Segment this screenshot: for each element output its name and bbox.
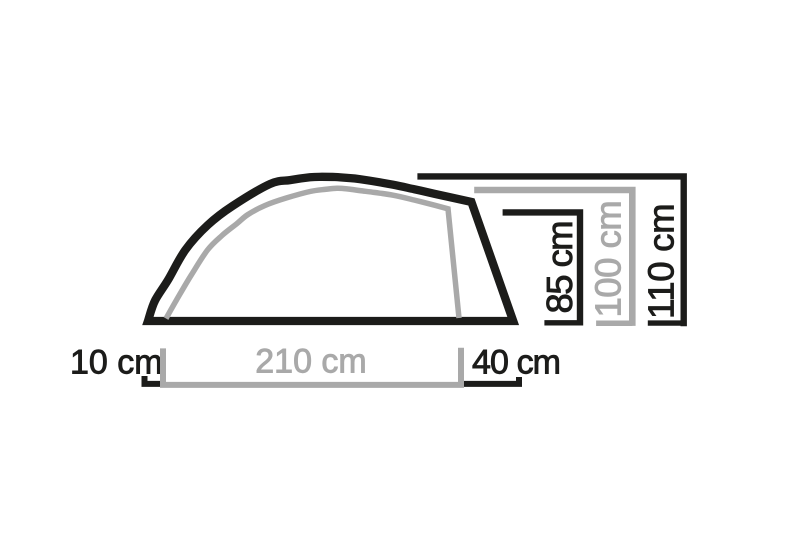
svg-text:10 cm: 10 cm — [70, 344, 163, 382]
svg-text:210 cm: 210 cm — [255, 343, 367, 381]
svg-text:85 cm: 85 cm — [539, 222, 580, 313]
svg-text:110 cm: 110 cm — [641, 204, 682, 319]
svg-text:40 cm: 40 cm — [472, 344, 560, 382]
svg-text:100 cm: 100 cm — [587, 201, 628, 318]
